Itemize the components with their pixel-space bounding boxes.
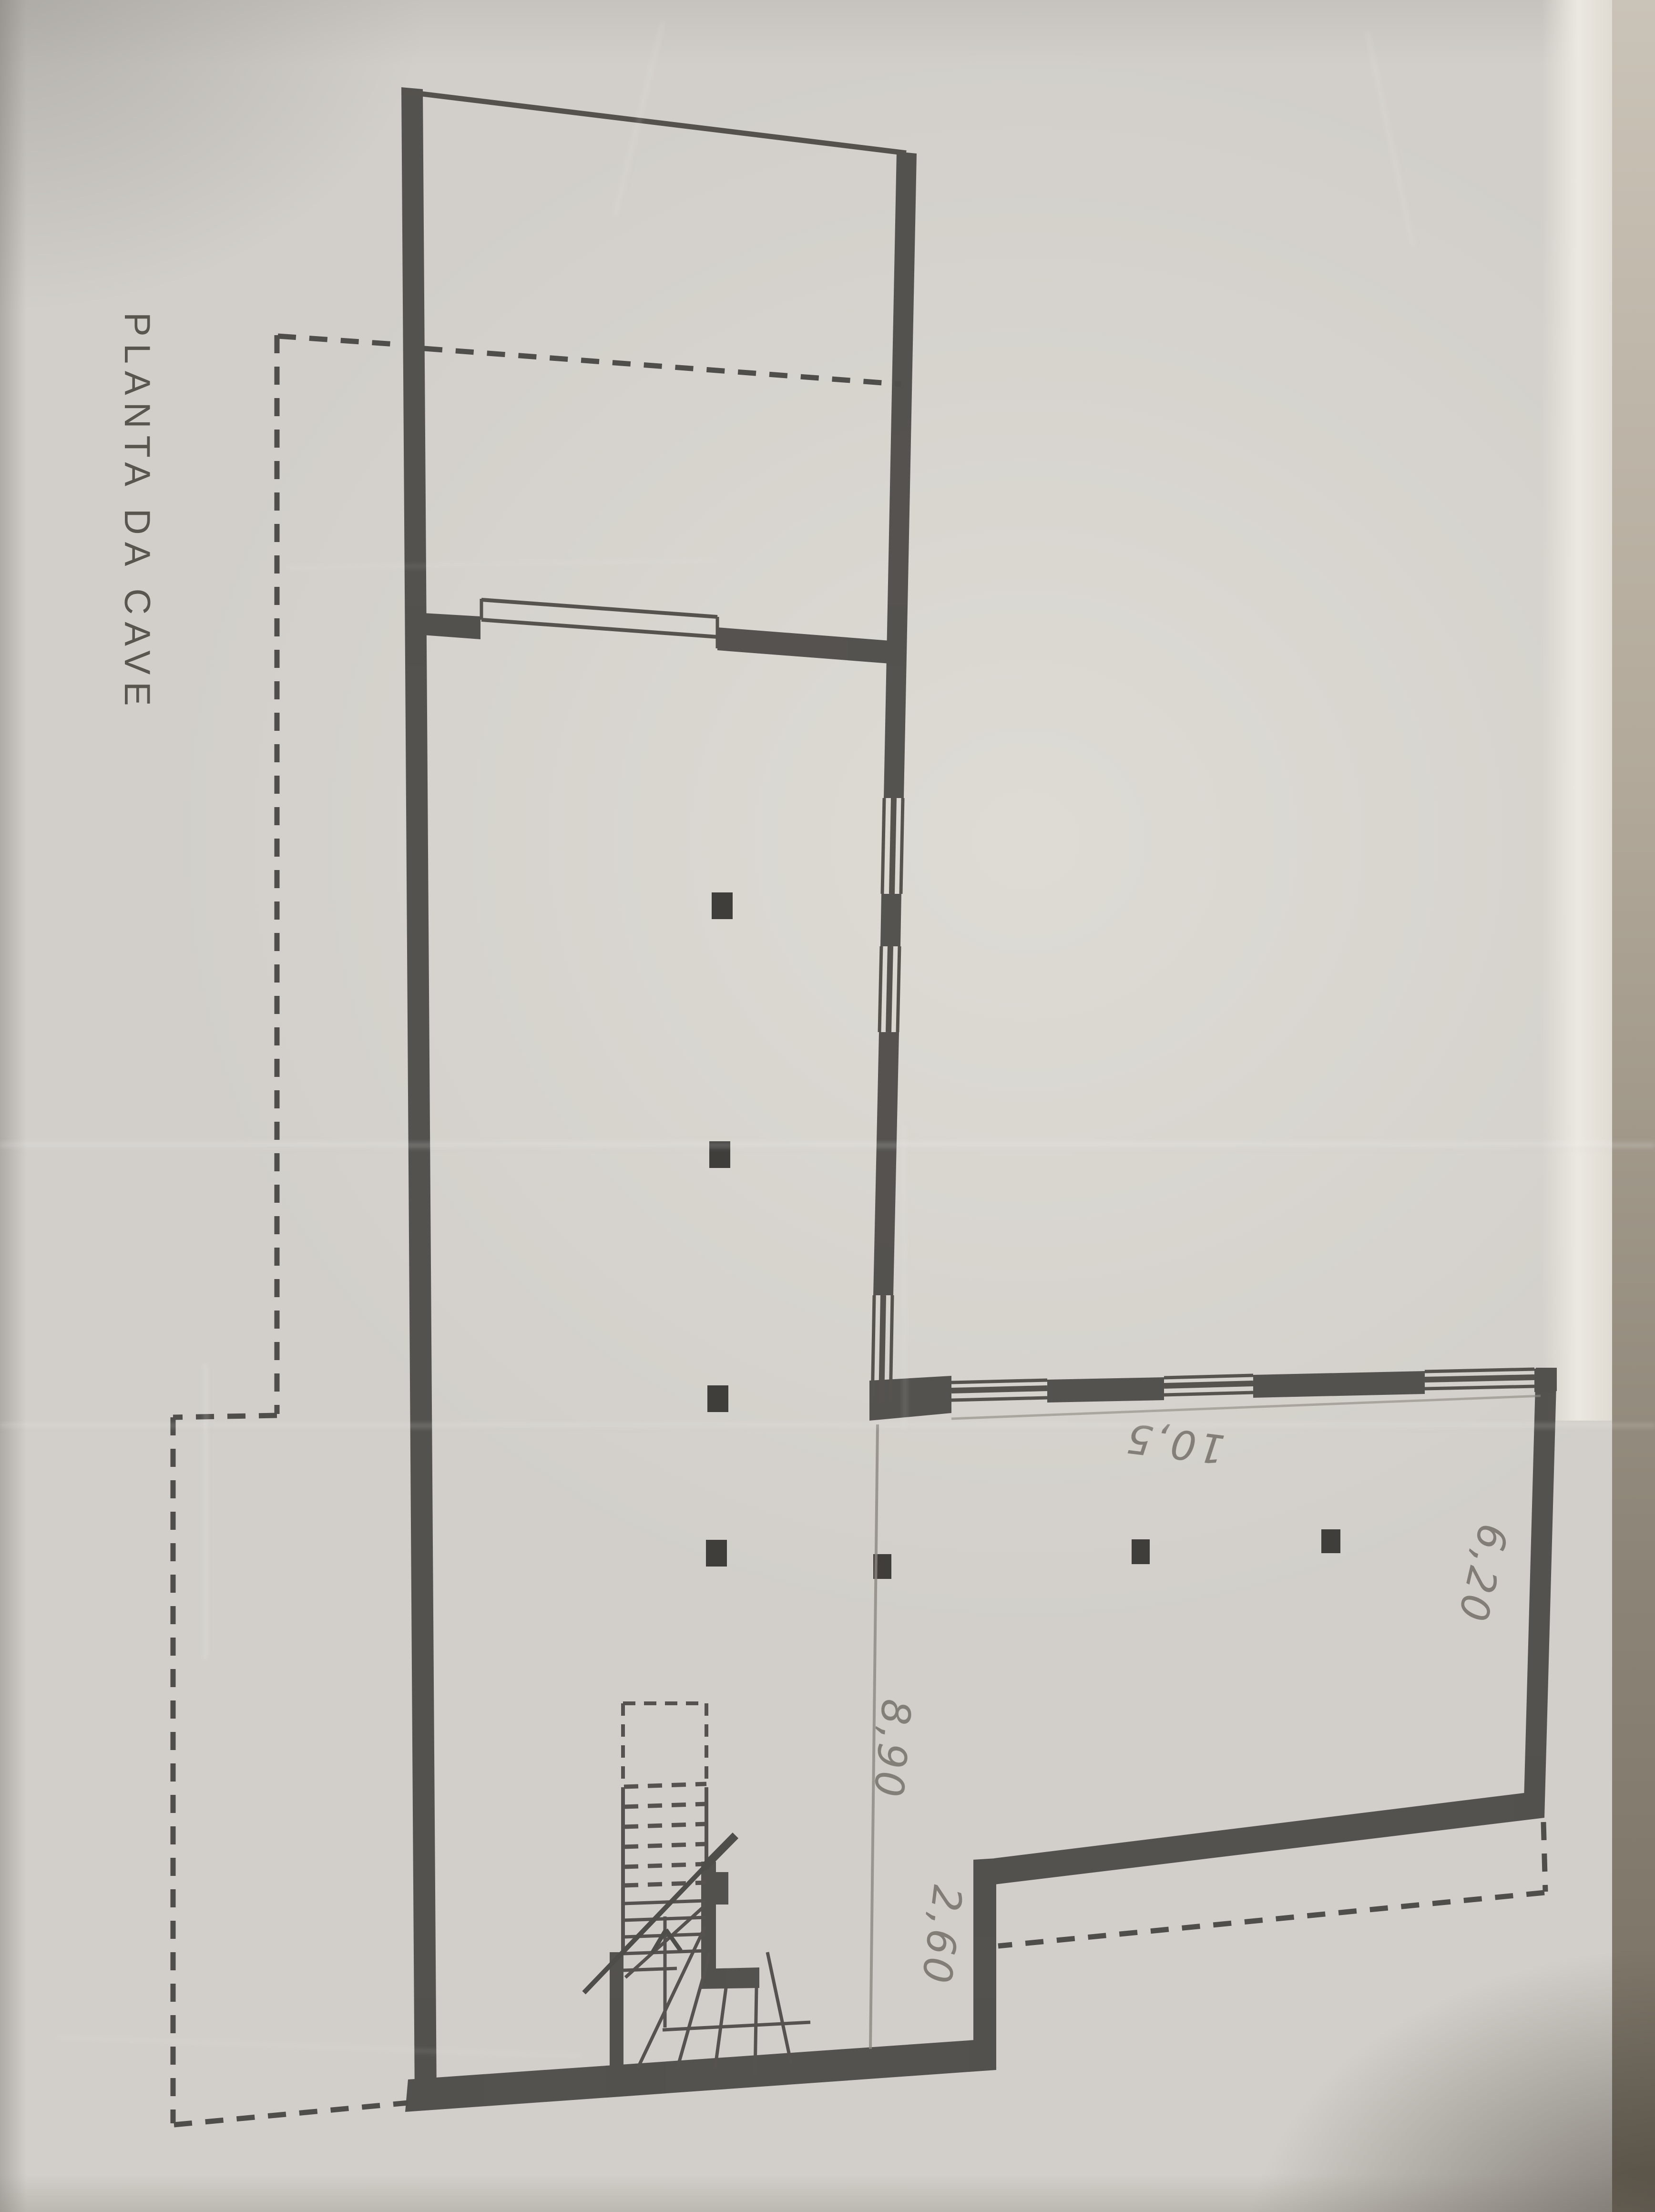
wall-stair-newel-vertical bbox=[701, 1862, 716, 1987]
window-right-2 bbox=[879, 946, 899, 1032]
boundary-step bbox=[173, 1415, 277, 1417]
window-right-1 bbox=[882, 798, 903, 894]
pillar bbox=[709, 1141, 730, 1168]
wall-stair-stub-left bbox=[610, 1952, 623, 2078]
stair-dashed-enclosure bbox=[623, 1703, 706, 1793]
window-lines bbox=[481, 599, 1534, 1403]
outer-walls bbox=[401, 87, 1557, 2112]
wall-step bbox=[973, 1858, 996, 2058]
wall-right-upper-seg1 bbox=[884, 152, 917, 798]
pillar bbox=[707, 1385, 728, 1412]
wall-wing-right bbox=[1523, 1368, 1557, 1818]
scanned-floor-plan-photo: PLANTA DA CAVE 8,90 2,60 6,20 10,5 bbox=[0, 0, 1655, 2212]
window-wing-top-1 bbox=[951, 1380, 1047, 1400]
dimension-label-890: 8,90 bbox=[865, 1697, 920, 1802]
boundary-top-left-link bbox=[278, 336, 402, 345]
wall-interior-right-part bbox=[717, 627, 902, 665]
dimension-label-260: 2,60 bbox=[912, 1883, 971, 1988]
pencil-guides bbox=[870, 1396, 1541, 2049]
pillar bbox=[712, 892, 733, 919]
pillar bbox=[1132, 1539, 1150, 1564]
pillar bbox=[1321, 1529, 1340, 1553]
wall-stair-newel-notch bbox=[716, 1872, 728, 1905]
wall-top-edge-line bbox=[403, 92, 906, 153]
dimension-label-105: 10,5 bbox=[1122, 1414, 1227, 1473]
dimension-label-620: 6,20 bbox=[1449, 1520, 1517, 1628]
dashed-boundary bbox=[173, 335, 1545, 2125]
stair-dashed-treads bbox=[624, 1784, 706, 1885]
window-wing-top-2 bbox=[1164, 1375, 1253, 1395]
wall-left bbox=[401, 87, 437, 2100]
wall-wing-bottom bbox=[994, 1791, 1544, 1884]
wall-stair-newel-arm bbox=[701, 1967, 759, 1989]
plan-title: PLANTA DA CAVE bbox=[117, 312, 157, 713]
boundary-bottom-right bbox=[998, 1893, 1544, 1946]
pillar bbox=[706, 1540, 727, 1567]
wall-interior-left-stub bbox=[423, 613, 480, 639]
wall-right-upper-seg3 bbox=[873, 1032, 899, 1295]
window-wing-top-3 bbox=[1425, 1369, 1534, 1389]
boundary-bottom-left bbox=[174, 2103, 408, 2125]
boundary-right-vertical bbox=[1543, 1822, 1545, 1892]
wall-wing-top-seg2 bbox=[1253, 1371, 1425, 1398]
boundary-through-top-room bbox=[424, 348, 901, 384]
pillars bbox=[706, 892, 1340, 1579]
wall-right-upper-seg2 bbox=[880, 894, 901, 946]
interior-wall-opening bbox=[481, 599, 717, 648]
wall-wing-top-seg1 bbox=[1047, 1377, 1164, 1403]
floor-plan-drawing: PLANTA DA CAVE 8,90 2,60 6,20 10,5 bbox=[0, 0, 1655, 2212]
wall-bottom-main bbox=[405, 2038, 996, 2112]
